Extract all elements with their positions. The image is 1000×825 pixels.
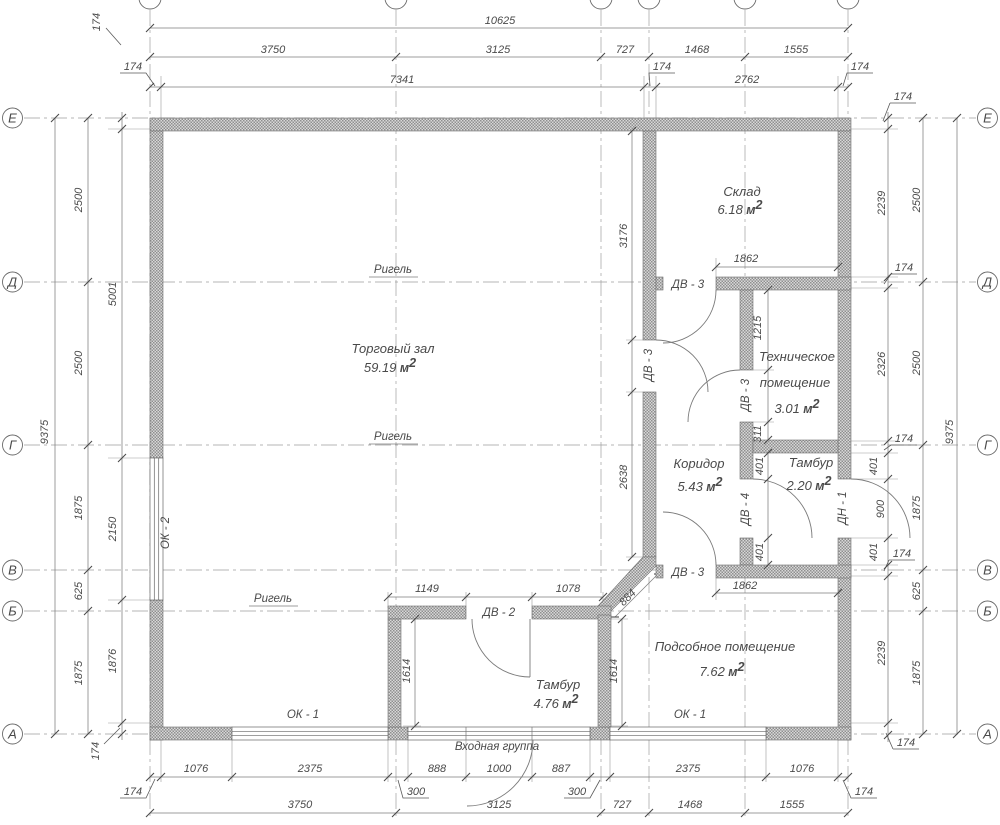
dimension-label: 727 [613,799,632,811]
dimension-label: 2239 [876,191,888,216]
dimension-label: 401 [754,543,766,561]
dimension-label: 174 [895,433,913,445]
dimension-label: 1000 [487,763,512,775]
room-name: Подсобное помещение [655,639,796,654]
dimension-label: 10625 [485,15,516,27]
room-area: 6.18 м2 [718,198,763,217]
room-area: 5.43 м2 [678,475,723,494]
dimension-label: 1468 [678,799,703,811]
column-axis-bubble [139,0,161,9]
axis-letter-left: Д [6,275,17,290]
dimension-label: 3750 [288,799,313,811]
column-axis-bubble [638,0,660,9]
dimension-label: 1862 [734,253,758,265]
dimension-label: 1468 [685,44,710,56]
room-area: 7.62 м2 [700,660,745,679]
door-dv3-corridor-arc [663,512,716,565]
door-dv2-arc [472,619,530,677]
dimension-label: 174 [124,61,142,73]
room-name: Тамбур [789,455,834,470]
rigel-label: Ригель [254,593,292,605]
door-dv3-sklad-arc [663,290,716,343]
door-openings [466,277,851,740]
entrance-glazing [408,727,590,740]
room-name: Склад [723,184,760,199]
axis-letter-left: Б [8,604,17,619]
dimension-extension-lines [108,76,898,782]
dimension-label: 3125 [486,44,511,56]
dimension-label: 727 [616,44,635,56]
dimension-label: 900 [875,499,887,518]
opening-label: ОК - 2 [160,516,172,549]
opening-label: ДВ - 3 [643,348,655,383]
opening-label: ДВ - 3 [670,567,705,579]
dimension-label: 174 [895,262,913,274]
axis-letter-left: А [7,727,17,742]
axis-letter-left: В [8,563,17,578]
dimension-label: 2762 [734,74,759,86]
room-name: Техническое [759,349,835,364]
dimension-label: 1078 [556,583,581,595]
dimension-label: 2500 [911,350,923,376]
axis-letter-right: Б [983,604,992,619]
rigel-label: Ригель [374,431,412,443]
dimension-label: 1875 [911,660,923,685]
dimension-label: 2375 [297,763,323,775]
dimension-label: 1076 [790,763,815,775]
dimension-label: 1555 [784,44,809,56]
dimension-label: 174 [855,786,873,798]
opening-label: ДН - 1 [837,491,849,526]
room-area: 3.01 м2 [775,397,820,416]
dimension-lines [55,28,957,813]
dimension-label: 174 [91,13,103,31]
dimension-label: 401 [868,543,880,561]
room-area: 59.19 м2 [364,356,416,375]
dimension-label: 1076 [184,763,209,775]
dimension-label: 2500 [911,187,923,213]
dimension-label: 3750 [261,44,286,56]
dimension-label: 1875 [911,495,923,520]
axis-letter-left: Е [8,111,17,126]
dimension-label: 1555 [780,799,805,811]
opening-label: ДВ - 3 [670,279,705,291]
dimension-label: 887 [552,763,571,775]
dimension-label: 2638 [618,464,630,490]
axis-letter-right: Г [984,438,992,453]
dimension-label: 1875 [73,495,85,520]
dimension-label: 1876 [107,648,119,673]
axis-letter-right: Д [981,275,992,290]
axis-letter-right: А [982,727,992,742]
dimension-label: 5001 [107,282,119,306]
dimension-label: 9375 [944,419,956,444]
column-axis-bubble [590,0,612,9]
window-ok1-left [232,727,388,740]
door-dv3-hall-arc [656,340,708,392]
dimension-label: 2500 [73,350,85,376]
rigel-label: Ригель [374,264,412,276]
dimension-label: 7341 [390,74,414,86]
dimension-label: 9375 [39,419,51,444]
dimension-label: 2375 [675,763,701,775]
column-axis-bubble [734,0,756,9]
dimension-label: 300 [407,786,426,798]
dimension-label: 2150 [107,516,119,542]
opening-label: ОК - 1 [674,709,706,721]
dimension-label: 625 [911,581,923,600]
dimension-label: 1149 [415,583,439,595]
dimension-label: 1875 [73,660,85,685]
axis-letter-right: Е [983,111,992,126]
dimension-label: 174 [897,737,915,749]
room-area: 2.20 м2 [786,474,832,493]
opening-label: ОК - 1 [287,709,319,721]
dimension-label: 174 [893,548,911,560]
floor-plan-drawing: Входная группа 1062537503125727146815551… [0,0,1000,820]
column-axis-bubble [385,0,407,9]
room-name: помещение [760,375,830,390]
room-area: 4.76 м2 [534,692,579,711]
dimension-label: 1862 [733,580,757,592]
floor-plan-canvas: Входная группа 1062537503125727146815551… [0,0,1000,820]
dimension-label: 3125 [487,799,512,811]
room-name: Тамбур [536,677,581,692]
dimension-label: 1614 [608,659,620,683]
windows [150,458,766,740]
dimension-label: 3176 [618,223,630,248]
opening-label: ДВ - 2 [481,607,516,619]
dimension-label: 1614 [401,659,413,683]
dimension-label: 401 [754,457,766,475]
dimension-label: 174 [894,91,912,103]
dimension-label: 300 [568,786,587,798]
room-name: Коридор [674,456,725,471]
dimension-label: 174 [653,61,671,73]
column-axis-bubble [837,0,859,9]
window-ok1-right [610,727,766,740]
dimension-label: 174 [124,786,142,798]
axis-letter-right: В [983,563,992,578]
dimension-label: 311 [752,425,764,443]
axis-letter-left: Г [9,438,17,453]
dimension-label: 174 [851,61,869,73]
dimension-label: 888 [428,763,447,775]
opening-label: ДВ - 4 [740,493,752,527]
dimension-label: 1215 [752,315,764,340]
dimension-label: 2326 [876,351,888,377]
dimension-label: 401 [868,457,880,475]
dimension-label: 174 [90,742,102,760]
entrance-group-label: Входная группа [455,741,539,753]
dimension-label: 2239 [876,641,888,666]
opening-label: ДВ - 3 [740,378,752,413]
room-name: Торговый зал [352,341,436,356]
dimension-label: 2500 [73,187,85,213]
door-dv3-tech-arc [688,370,740,422]
dimension-label: 625 [73,581,85,600]
